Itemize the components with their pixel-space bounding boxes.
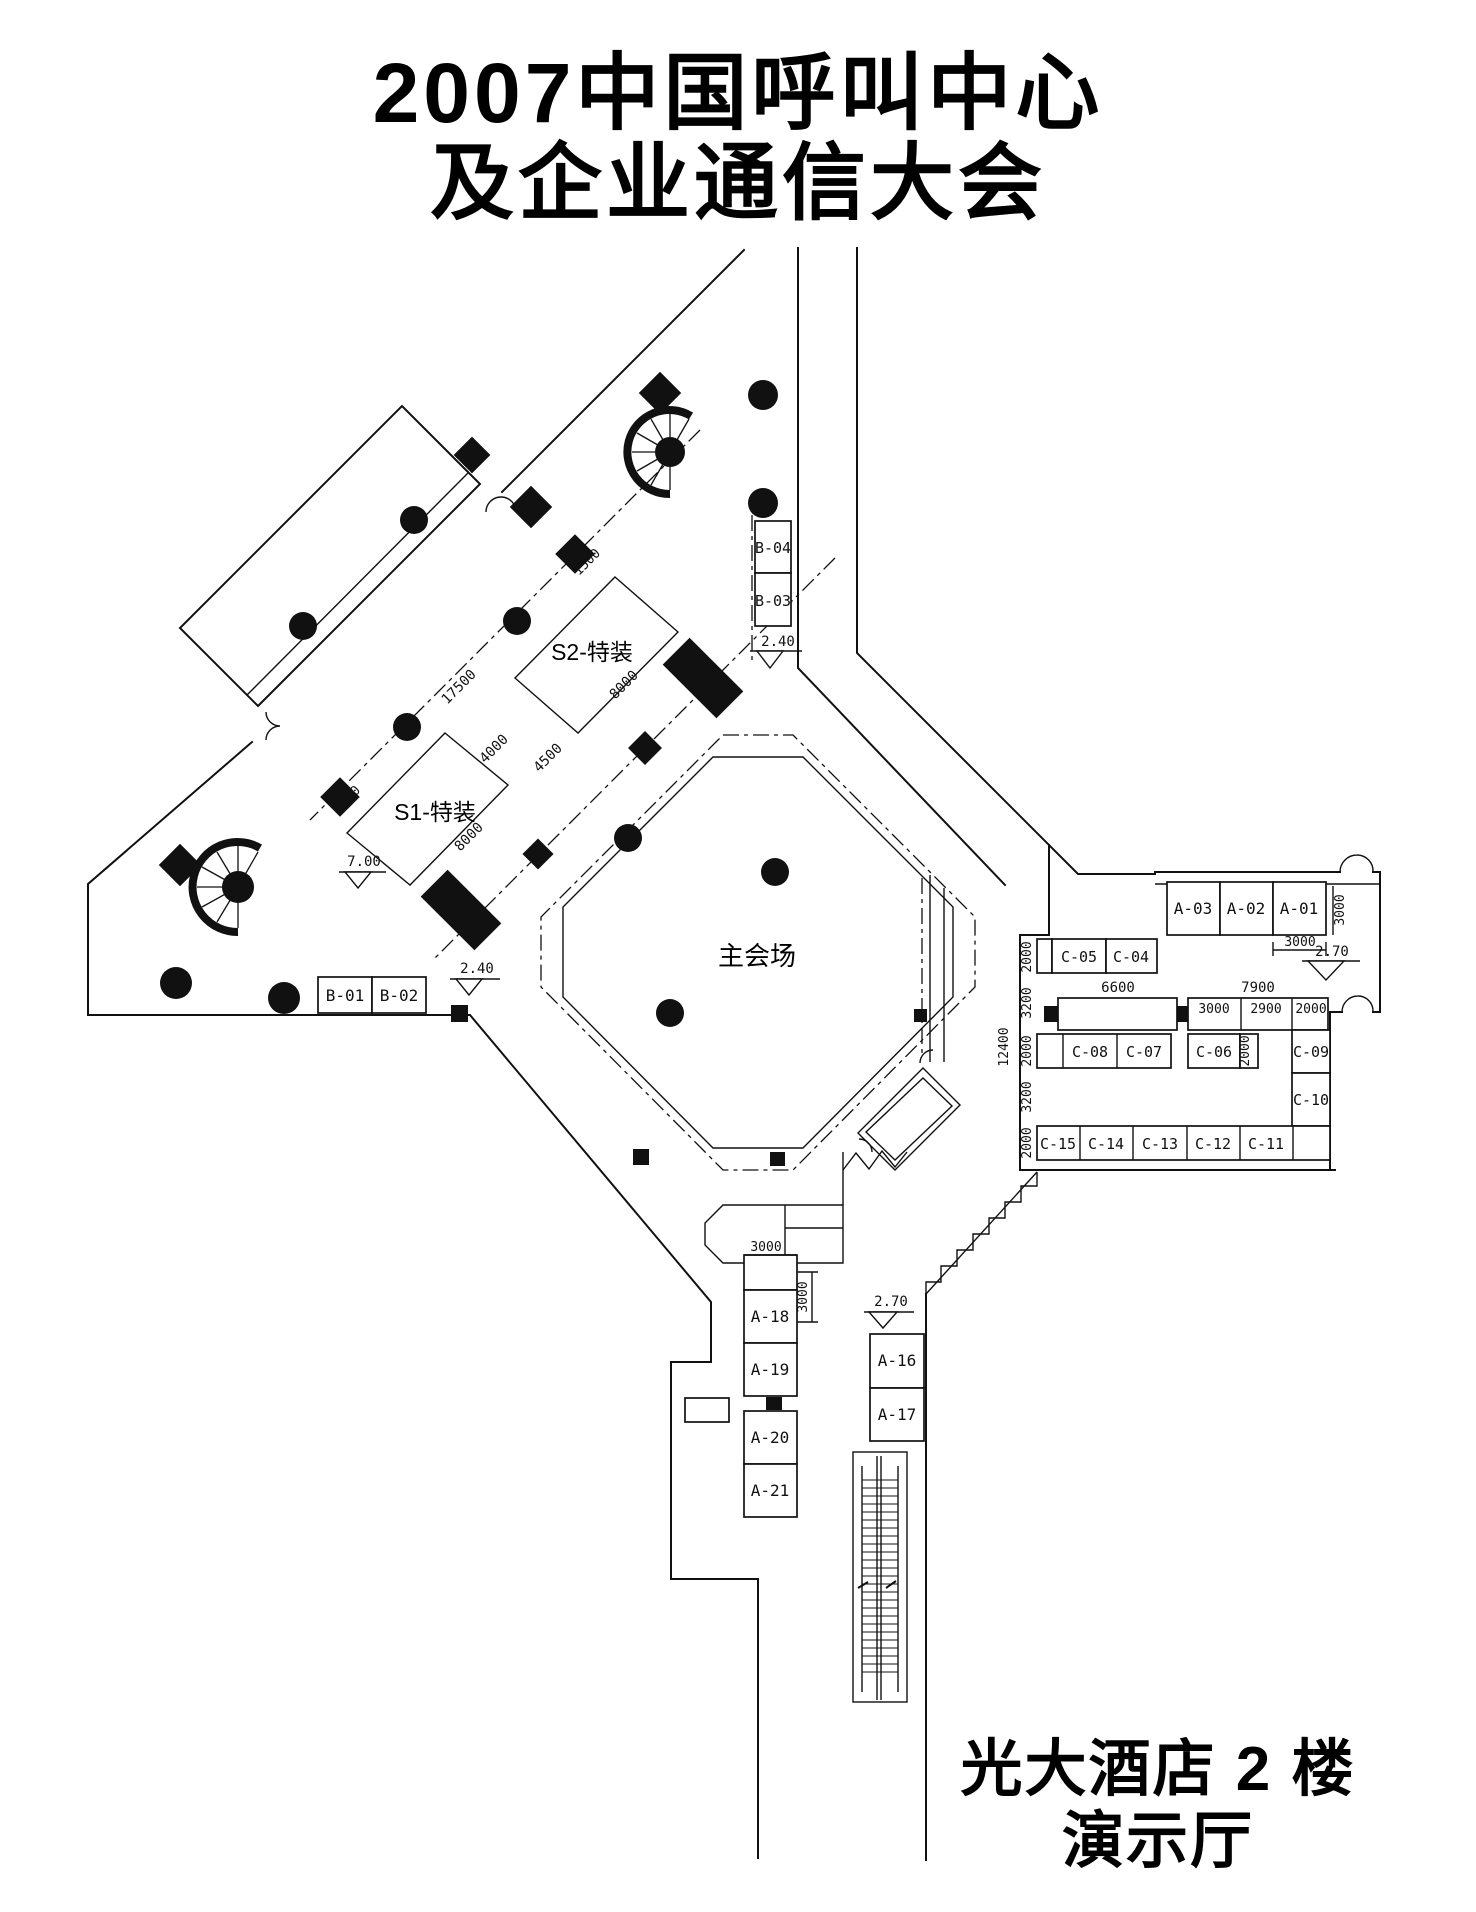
dim-2000-r1: 2000: [1020, 941, 1035, 972]
dim-4500: 4500: [531, 741, 566, 776]
booth-label: B-04: [755, 539, 791, 557]
dim-3000-a01-h: 3000: [1284, 935, 1315, 950]
double-door-right-icon: [1342, 996, 1373, 1012]
wall-corridor-left: [798, 248, 1005, 885]
booth-c10: C-10: [1292, 1073, 1330, 1126]
wing-door-sw-icon: [266, 712, 280, 740]
dim-3000-sub: 3000: [1198, 1002, 1229, 1017]
dim-7900: 7900: [1241, 980, 1275, 996]
spiral-center: [222, 871, 254, 903]
dim-3200-r1: 3200: [1020, 987, 1035, 1018]
booth-label: C-08: [1072, 1043, 1108, 1061]
booth-label: A-01: [1280, 899, 1319, 918]
page-title-line2: 及企业通信大会: [430, 136, 1046, 230]
booth-a20: A-20: [744, 1411, 797, 1464]
elevation-label: 2.70: [1315, 944, 1349, 960]
elevation-label: 2.40: [761, 634, 795, 650]
elevation-2.40-left: 2.40: [450, 961, 500, 995]
spiral-center: [655, 437, 685, 467]
booth-b03: B-03: [755, 573, 791, 626]
square-column: [633, 1149, 649, 1165]
hall-label-s1: S1-特装: [394, 799, 476, 825]
round-column: [748, 488, 778, 518]
booth-label: C-12: [1195, 1135, 1231, 1153]
booth-label: B-03: [755, 592, 791, 610]
booth-a18: A-18: [744, 1290, 797, 1343]
wall-wing-outline: [180, 406, 480, 706]
diamond-column: [510, 486, 552, 528]
round-column: [400, 506, 428, 534]
booth-label: C-05: [1061, 948, 1097, 966]
wall-wing-inner: [247, 473, 468, 695]
round-column: [160, 967, 192, 999]
square-column: [770, 1152, 785, 1166]
stage-outer: [858, 1068, 960, 1170]
dim-6600: 6600: [1101, 980, 1135, 996]
wall-topleft-diagonal: [502, 250, 744, 492]
booth-label: A-16: [878, 1351, 917, 1370]
booth-c06: C-06 2000: [1188, 1034, 1258, 1068]
footer-line1: 光大酒店 2 楼: [961, 1735, 1356, 1804]
booth-b01: B-01: [318, 977, 372, 1013]
stage-inner: [866, 1078, 952, 1160]
elevation-label: 2.70: [874, 1294, 908, 1310]
elevation-2.40-top: 2.40: [750, 634, 802, 668]
booth-a03: A-03: [1167, 882, 1220, 935]
booth-label: A-03: [1174, 899, 1213, 918]
block-column: [421, 870, 502, 951]
booth-label: A-20: [751, 1428, 790, 1447]
booth-c09: C-09: [1292, 1030, 1330, 1073]
booth-label: C-10: [1293, 1091, 1329, 1109]
booth-label: C-15: [1040, 1135, 1076, 1153]
round-column: [393, 713, 421, 741]
booth-a16: A-16: [870, 1334, 924, 1388]
booth-a17: A-17: [870, 1388, 924, 1441]
square-column: [914, 1009, 927, 1022]
booth-label: B-01: [326, 986, 365, 1005]
round-column: [503, 607, 531, 635]
booth-label: A-21: [751, 1481, 790, 1500]
dim-2000-c06: 2000: [1238, 1035, 1253, 1066]
booth-c15-row: C-15 C-14 C-13 C-12 C-11: [1037, 1126, 1330, 1160]
diamond-column: [522, 838, 553, 869]
dim-4000: 4000: [477, 732, 512, 767]
round-column: [656, 999, 684, 1027]
booth-label: C-11: [1248, 1135, 1284, 1153]
booth-label: C-04: [1113, 948, 1149, 966]
footer-line2: 演示厅: [1062, 1807, 1254, 1876]
dim-3000-a18-h: 3000: [750, 1240, 781, 1255]
booth-label: A-17: [878, 1405, 917, 1424]
dim-2900-sub: 2900: [1250, 1002, 1281, 1017]
block-column: [663, 638, 744, 719]
dim-2000-sub: 2000: [1295, 1002, 1326, 1017]
escalator-rails: [862, 1456, 898, 1700]
diamond-column: [454, 437, 491, 474]
round-column: [289, 612, 317, 640]
hall-label-s2: S2-特装: [551, 639, 633, 665]
booth-b04: B-04: [755, 521, 791, 573]
booth-label: C-09: [1293, 1043, 1329, 1061]
wall-stage-pair: [930, 875, 944, 1062]
spiral-stair-upper: [627, 410, 691, 494]
booth-c05: C-05: [1037, 939, 1106, 973]
page-title-line1: 2007中国呼叫中心: [373, 46, 1104, 140]
booth-label: A-18: [751, 1307, 790, 1326]
wing-door-ne-icon: [486, 497, 516, 512]
stage-door-icon: [859, 1139, 872, 1152]
small-room: [685, 1398, 729, 1422]
booth-a18-top: [744, 1255, 797, 1290]
wall-left-boundary: [88, 742, 758, 1858]
dim-3000-a01-v: 3000: [1333, 894, 1348, 925]
floorplan-drawing: 2007中国呼叫中心 及企业通信大会: [0, 0, 1476, 1912]
booth-label: C-14: [1088, 1135, 1124, 1153]
booth-label: C-07: [1126, 1043, 1162, 1061]
dim-12400: 12400: [997, 1027, 1012, 1066]
elevation-markers: 2.40 2.40 7.00 2.70 2.70: [339, 634, 1360, 1328]
booth-c04: C-04: [1106, 939, 1157, 973]
columns: [159, 372, 1189, 1410]
dim-3200-r2: 3200: [1020, 1081, 1035, 1112]
spiral-stair-lower: [193, 842, 260, 932]
booth-label: C-13: [1142, 1135, 1178, 1153]
floorplan-page: 2007中国呼叫中心 及企业通信大会: [0, 0, 1476, 1912]
dim-17500: 17500: [439, 667, 480, 708]
dim-2000-r2: 2000: [1020, 1035, 1035, 1066]
elevation-7.00: 7.00: [339, 854, 386, 888]
round-column: [614, 824, 642, 852]
booth-label: C-06: [1196, 1043, 1232, 1061]
wall-corridor-right: [857, 248, 1155, 874]
booth-a01: A-01: [1273, 882, 1326, 935]
stairs-stringer: [926, 1172, 1037, 1294]
elevation-label: 7.00: [347, 854, 381, 870]
booth-b02: B-02: [372, 977, 426, 1013]
booth-label: A-02: [1227, 899, 1266, 918]
booth-s2: S2-特装: [515, 577, 678, 733]
elevation-label: 2.40: [460, 961, 494, 977]
round-column: [268, 982, 300, 1014]
wall-band-6600: [1058, 998, 1177, 1030]
escalator-treads: [862, 1480, 898, 1672]
dim-8000-s2: 8000: [607, 668, 642, 703]
booth-c08-row: C-08 C-07: [1037, 1034, 1171, 1068]
booth-label: B-02: [380, 986, 419, 1005]
booth-label: A-19: [751, 1360, 790, 1379]
elevation-2.70-mid: 2.70: [864, 1294, 914, 1328]
dim-3000-a18-v: 3000: [796, 1281, 811, 1312]
round-column: [761, 858, 789, 886]
booth-a21: A-21: [744, 1464, 797, 1517]
double-door-top-icon: [1340, 855, 1373, 872]
round-column: [748, 380, 778, 410]
hall-label-main: 主会场: [718, 941, 796, 971]
dim-2000-r3: 2000: [1020, 1127, 1035, 1158]
booth-a02: A-02: [1220, 882, 1273, 935]
booth-a19: A-19: [744, 1343, 797, 1396]
square-column: [451, 1005, 468, 1022]
square-column: [766, 1397, 782, 1410]
wall-outlines: [88, 248, 1380, 1860]
escalator: [853, 1452, 907, 1702]
